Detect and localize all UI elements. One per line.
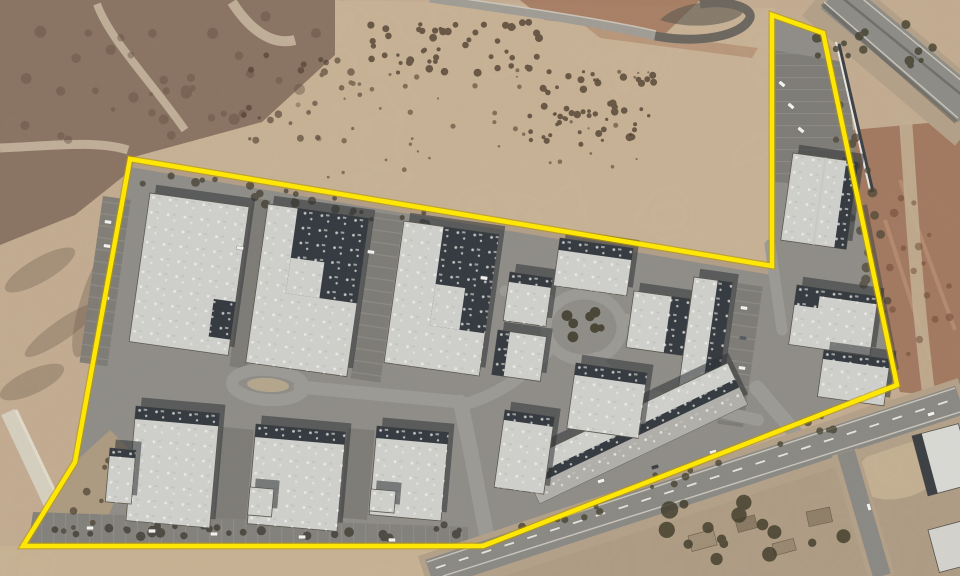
satellite-aerial-photo (0, 0, 960, 576)
satellite-map-view (0, 0, 960, 576)
photo-grain (0, 0, 960, 576)
